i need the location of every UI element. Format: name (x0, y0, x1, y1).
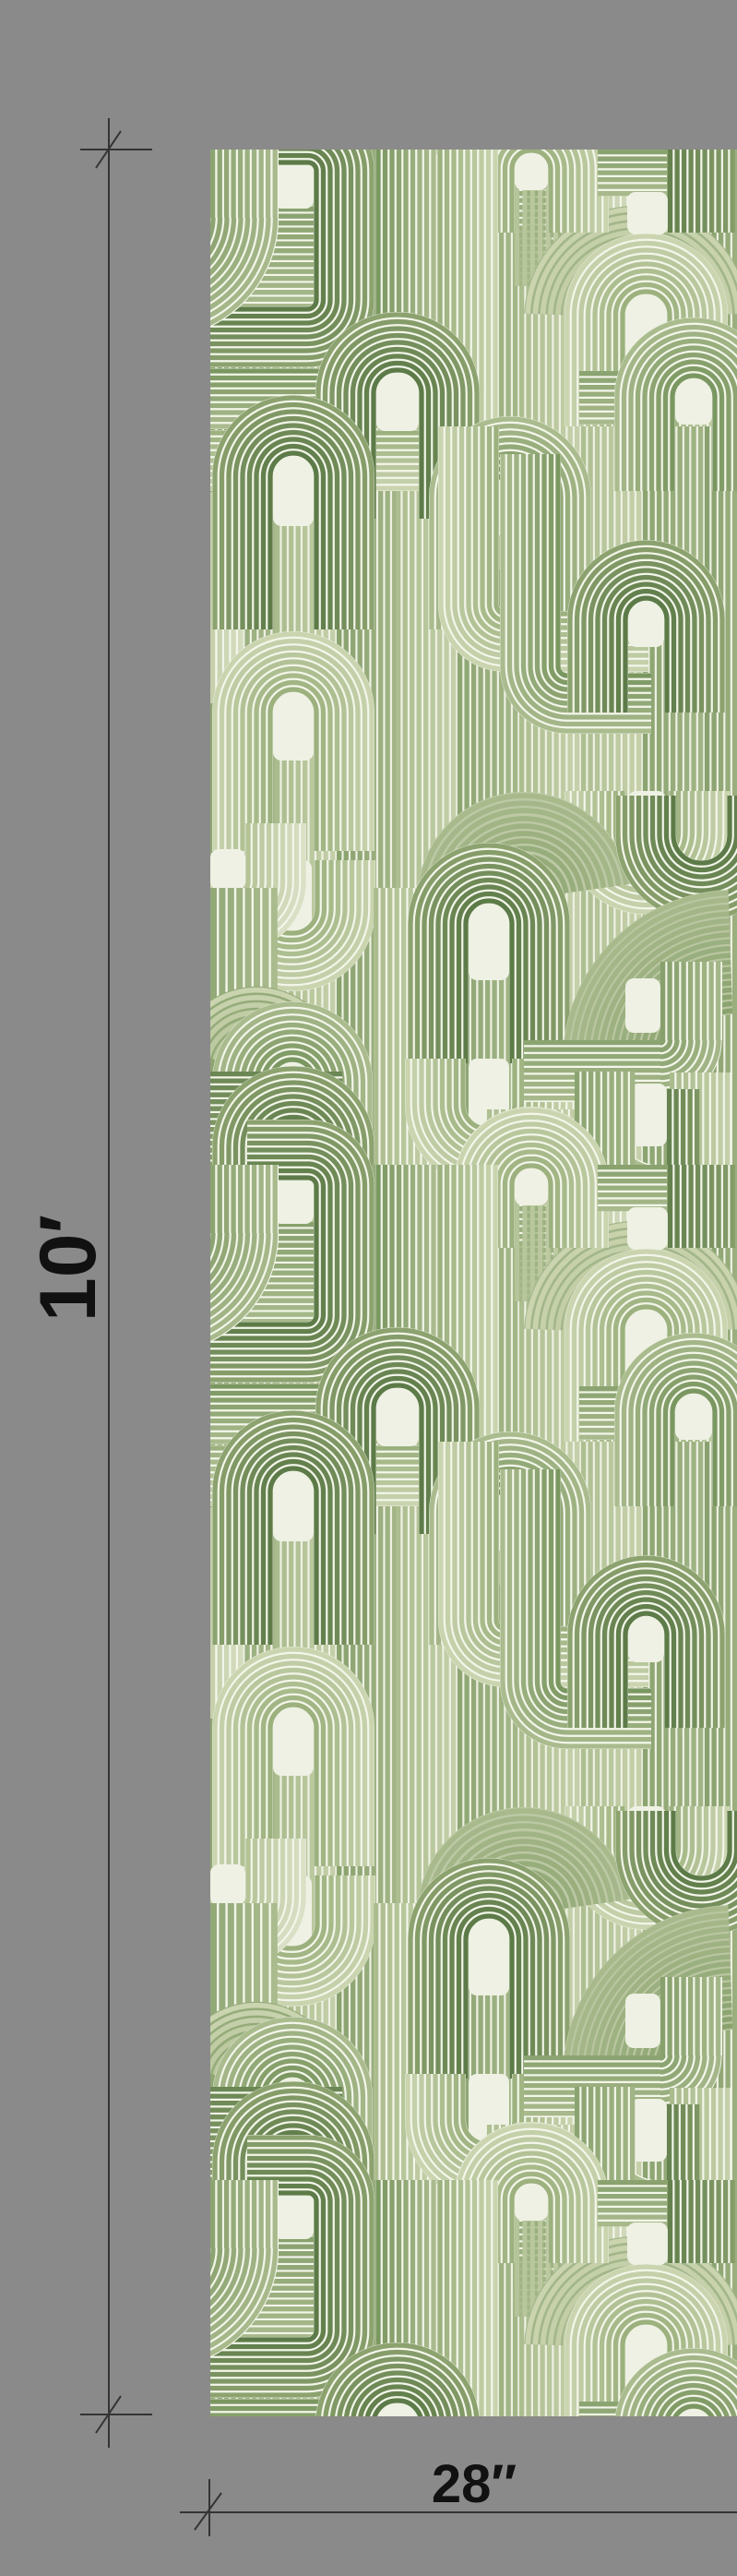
svg-text:10′: 10′ (24, 1215, 113, 1322)
svg-text:28″: 28″ (432, 2454, 517, 2514)
